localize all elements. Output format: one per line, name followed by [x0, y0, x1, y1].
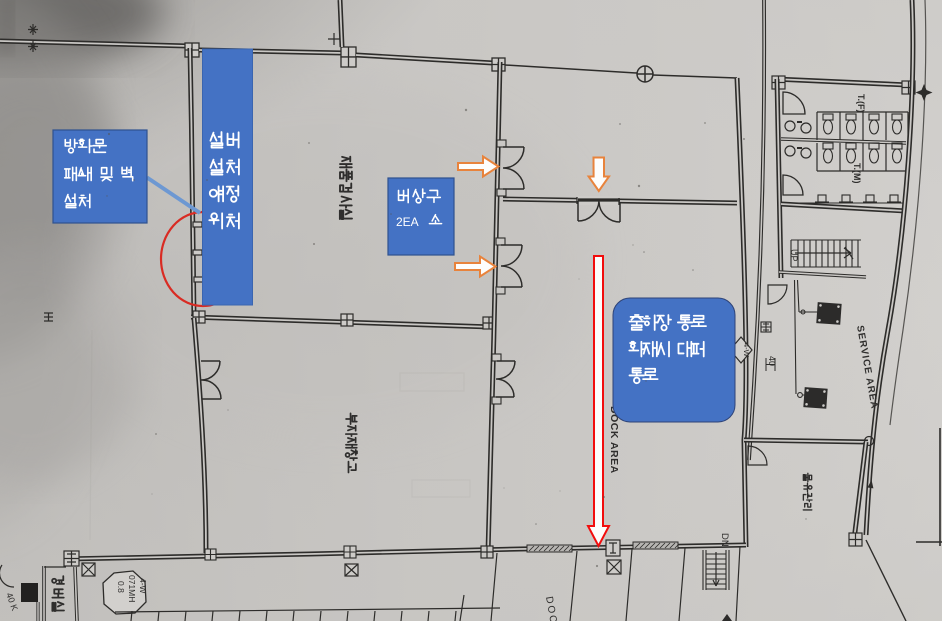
- svg-text:40: 40: [767, 356, 777, 366]
- svg-text:2EA: 2EA: [396, 215, 419, 229]
- svg-text:071MH: 071MH: [127, 575, 137, 602]
- svg-text:DN: DN: [719, 533, 730, 547]
- svg-text:UP: UP: [789, 249, 799, 262]
- svg-text:4-W: 4-W: [138, 578, 148, 594]
- svg-text:T.(M): T.(M): [852, 163, 862, 184]
- svg-text:T.(F): T.(F): [856, 94, 866, 113]
- svg-text:4-W: 4-W: [742, 343, 751, 358]
- svg-text:0.8: 0.8: [116, 581, 126, 593]
